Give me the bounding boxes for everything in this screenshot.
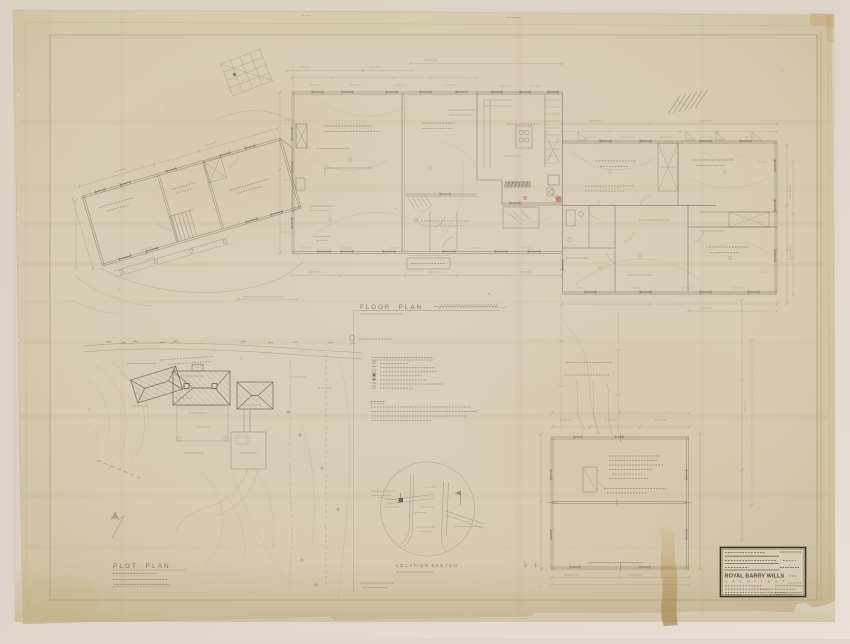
svg-text:A R C H I T E C T: A R C H I T E C T [725,580,787,584]
svg-text:ROYAL BARRY WILLS: ROYAL BARRY WILLS [725,573,785,579]
svg-text:FLOOR PLAN: FLOOR PLAN [360,304,423,311]
svg-text:LOCATION SKETCH: LOCATION SKETCH [396,563,458,568]
svg-text:PLOT PLAN: PLOT PLAN [113,563,171,570]
